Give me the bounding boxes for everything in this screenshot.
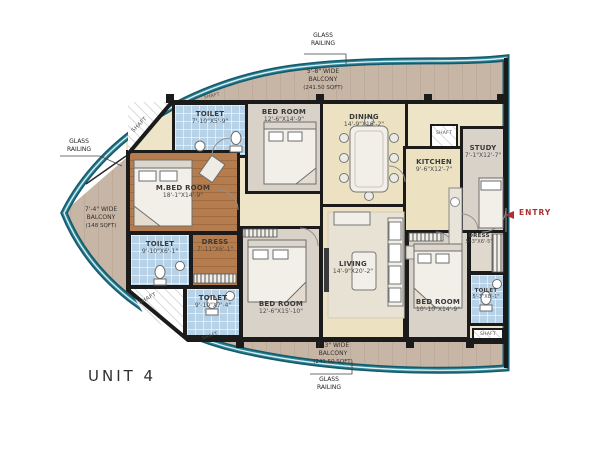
bed-bottom-bedroom	[243, 229, 306, 302]
entry-label: ENTRY	[519, 208, 551, 217]
entry-arrow-icon	[505, 211, 514, 219]
bed-right-bedroom	[409, 233, 462, 308]
dining-table-set	[340, 117, 399, 201]
living-furniture	[324, 212, 404, 318]
floor-plan: TOILET 7'-10"X5'-9" BED ROOM 12'-6"X14'-…	[0, 0, 600, 450]
bed-top-bedroom	[264, 122, 316, 184]
master-bed	[134, 155, 225, 226]
unit-title: UNIT 4	[88, 367, 156, 385]
wardrobe-dress-right	[492, 234, 503, 272]
wardrobe-dress-mid	[194, 274, 236, 283]
study-bed	[479, 178, 503, 228]
wall-balcony-left-edge	[86, 156, 126, 184]
